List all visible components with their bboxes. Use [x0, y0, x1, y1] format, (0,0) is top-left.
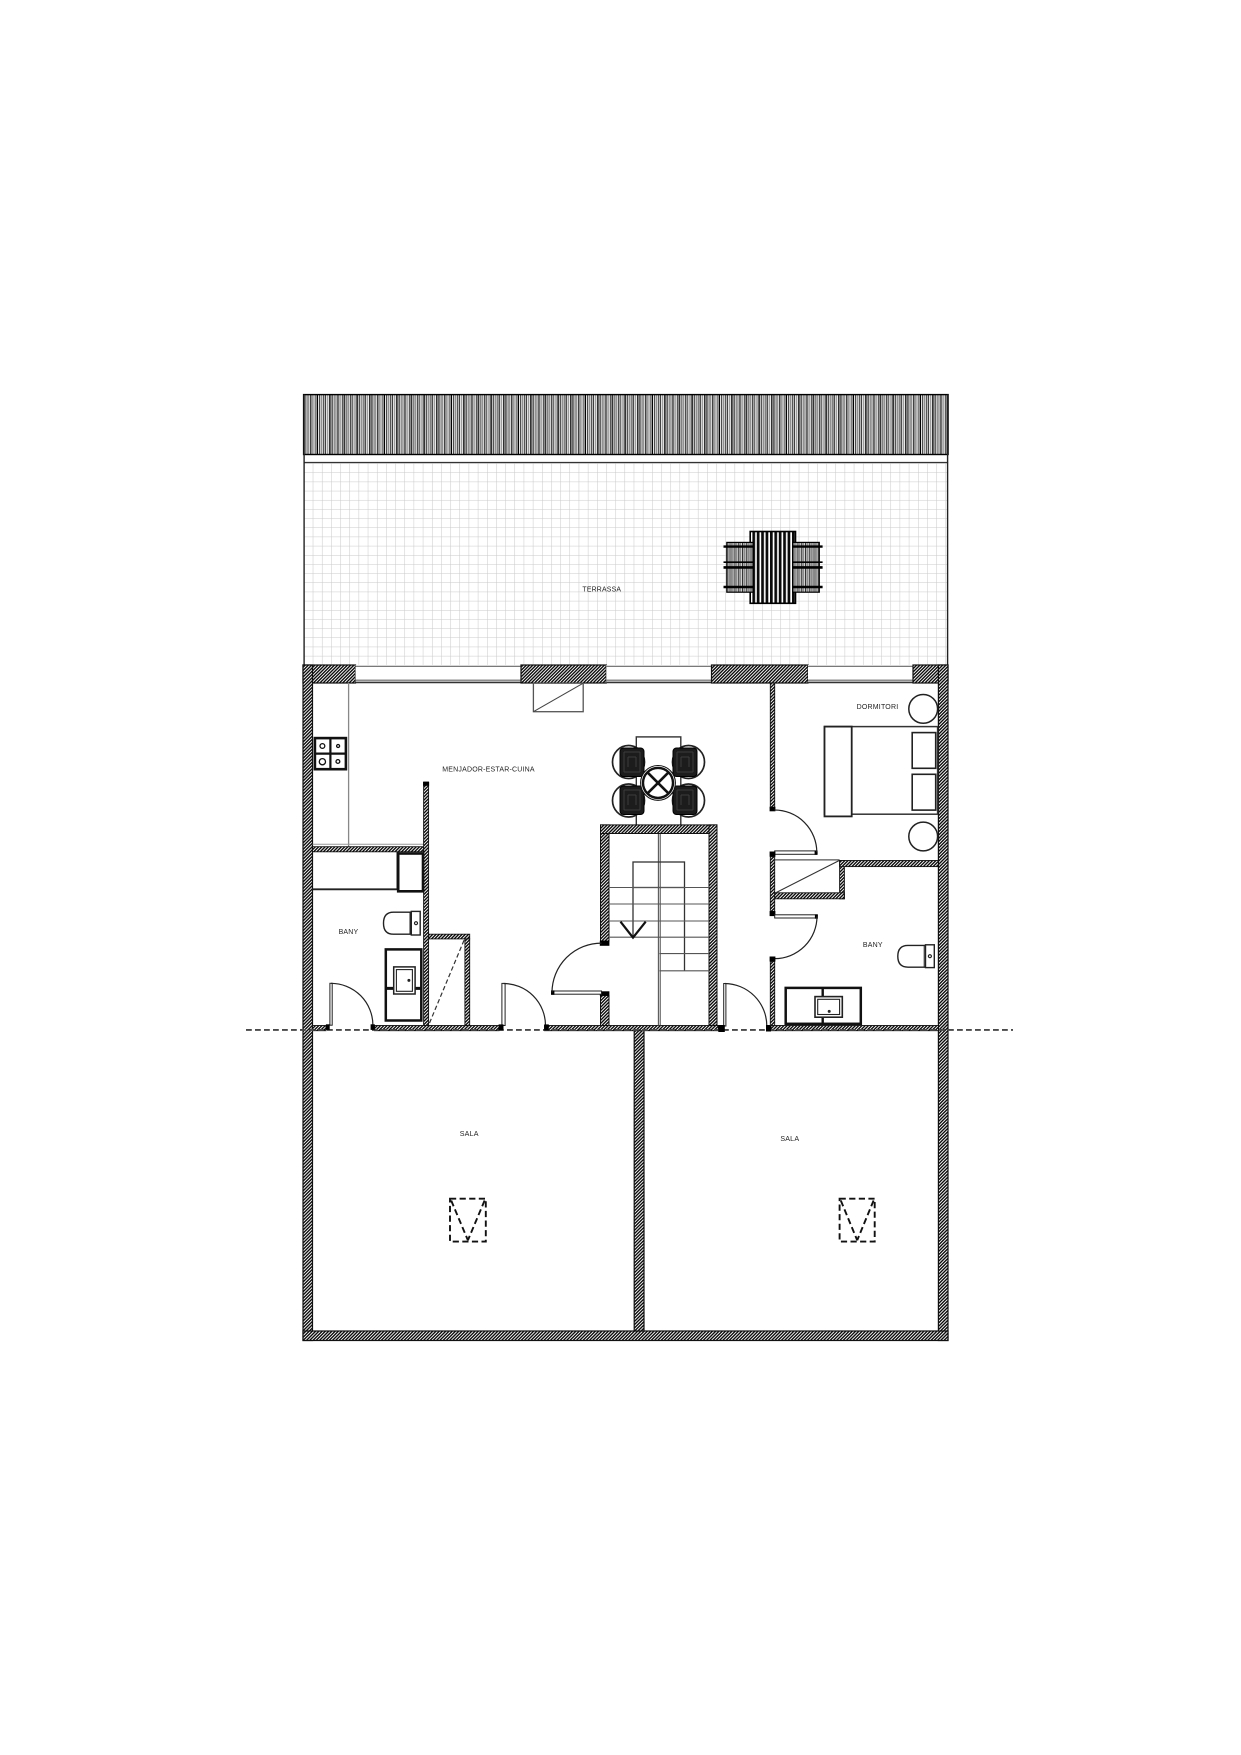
svg-text:BANY: BANY: [339, 929, 359, 936]
svg-text:MENJADOR-ESTAR-CUINA: MENJADOR-ESTAR-CUINA: [442, 767, 535, 774]
svg-text:BANY: BANY: [863, 942, 883, 949]
svg-text:SALA: SALA: [780, 1135, 799, 1143]
svg-text:DORMITORI: DORMITORI: [857, 704, 899, 711]
svg-text:TERRASSA: TERRASSA: [582, 586, 621, 593]
svg-text:SALA: SALA: [460, 1130, 479, 1138]
